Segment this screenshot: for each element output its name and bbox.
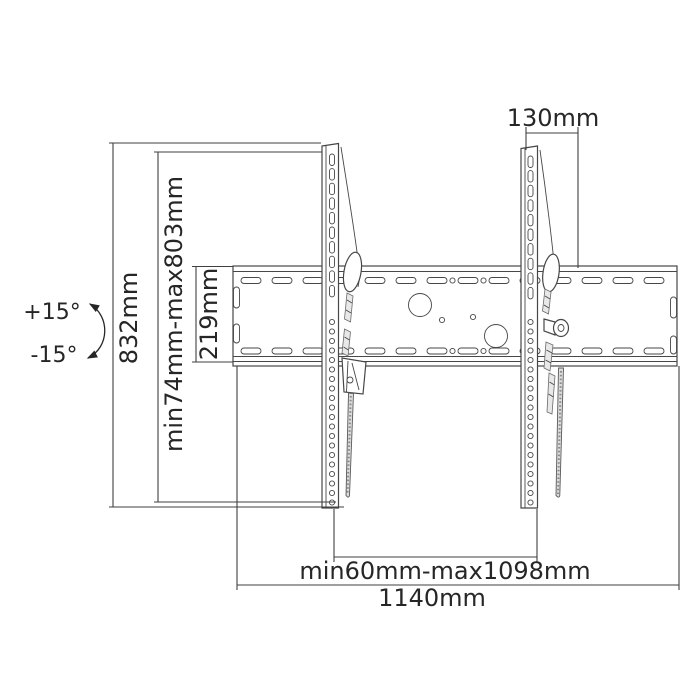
tilt-up-label: +15° (23, 300, 80, 325)
dimension-bracket-spacing-range: min60mm-max1098mm (299, 509, 590, 585)
mount-diagram-canvas: 832mm min74mm-max803mm 219mm 130mm min60… (0, 0, 700, 700)
right-bracket-arm (521, 146, 569, 508)
tilt-arc-icon (88, 304, 105, 358)
bracket-top-offset-label: 130mm (507, 104, 600, 132)
tilt-down-label: -15° (31, 343, 78, 368)
wall-plate (233, 266, 677, 366)
plate-height-label: 219mm (195, 268, 223, 361)
tilt-annotation: +15° -15° (23, 300, 104, 368)
plate-bottom-slot-row (241, 348, 664, 354)
plate-top-slot-row (241, 278, 664, 284)
vesa-height-range-label: min74mm-max803mm (160, 176, 188, 452)
total-height-label: 832mm (115, 272, 143, 365)
plate-width-label: 1140mm (378, 584, 486, 612)
bracket-spacing-range-label: min60mm-max1098mm (299, 557, 590, 585)
mount-diagram-page: 832mm min74mm-max803mm 219mm 130mm min60… (0, 0, 700, 700)
tilt-lock-knob (554, 320, 569, 337)
dimension-plate-height: 219mm (192, 267, 233, 363)
